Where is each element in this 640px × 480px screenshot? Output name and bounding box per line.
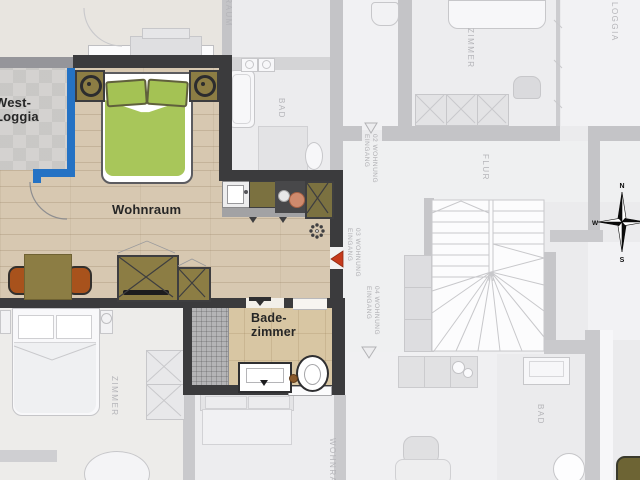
floor-plan-canvas: West- Loggia Wohnraum Bade- zimmer WOHNR… [0, 0, 640, 480]
compass-n: N [619, 183, 624, 190]
label-bad-bottom: BAD [536, 404, 545, 434]
label-zimmer-bottom: ZIMMER [110, 376, 119, 422]
cabinet-swing-lines [118, 241, 206, 266]
label-wohnraum-bottom: WOHNRAUM [328, 438, 337, 480]
label-loggia-right: LOGGIA [610, 2, 619, 42]
door-arc-loggia [30, 182, 67, 219]
entrance-03-line1: 03 WOHNUNG [353, 228, 361, 300]
badezimmer-label-line1: Bade- [251, 311, 296, 325]
label-bad-top: BAD [277, 98, 286, 130]
cabinet-x-lines [119, 183, 328, 297]
west-loggia-label-line1: West- [0, 96, 39, 110]
label-wohnraum-top: WOHNRAUM [224, 0, 233, 26]
label-entrance-04: 04 WOHNUNG EINGANG [364, 286, 380, 358]
entrance-04-line2: EINGANG [364, 286, 372, 358]
entrance-02-triangle [365, 123, 377, 133]
west-loggia-label: West- Loggia [0, 96, 39, 124]
compass-arms [598, 192, 640, 252]
entrance-03-marker [330, 247, 343, 269]
entrance-02-line1: 02 WOHNUNG [370, 134, 378, 196]
entrance-03-line2: EINGANG [345, 228, 353, 300]
badezimmer-label-line2: zimmer [251, 325, 296, 339]
staircase [432, 200, 544, 351]
door-arc-top-neighbor [84, 8, 122, 46]
entrance-02-line2: EINGANG [362, 134, 370, 196]
label-zimmer-right: ZIMMER [466, 28, 475, 76]
west-loggia-label-line2: Loggia [0, 110, 39, 124]
wohnraum-label: Wohnraum [112, 203, 181, 217]
compass-w: W [592, 220, 599, 227]
glazing-ticks [554, 20, 562, 108]
entrance-04-line1: 04 WOHNUNG [372, 286, 380, 358]
compass-rose: N S W E [592, 180, 640, 264]
vent-flower-icon [309, 223, 324, 238]
label-flur: FLUR [481, 154, 490, 186]
label-entrance-03: 03 WOHNUNG EINGANG [345, 228, 361, 300]
label-entrance-02: 02 WOHNUNG EINGANG [362, 134, 378, 196]
badezimmer-label: Bade- zimmer [251, 311, 296, 339]
compass-s: S [620, 257, 625, 264]
